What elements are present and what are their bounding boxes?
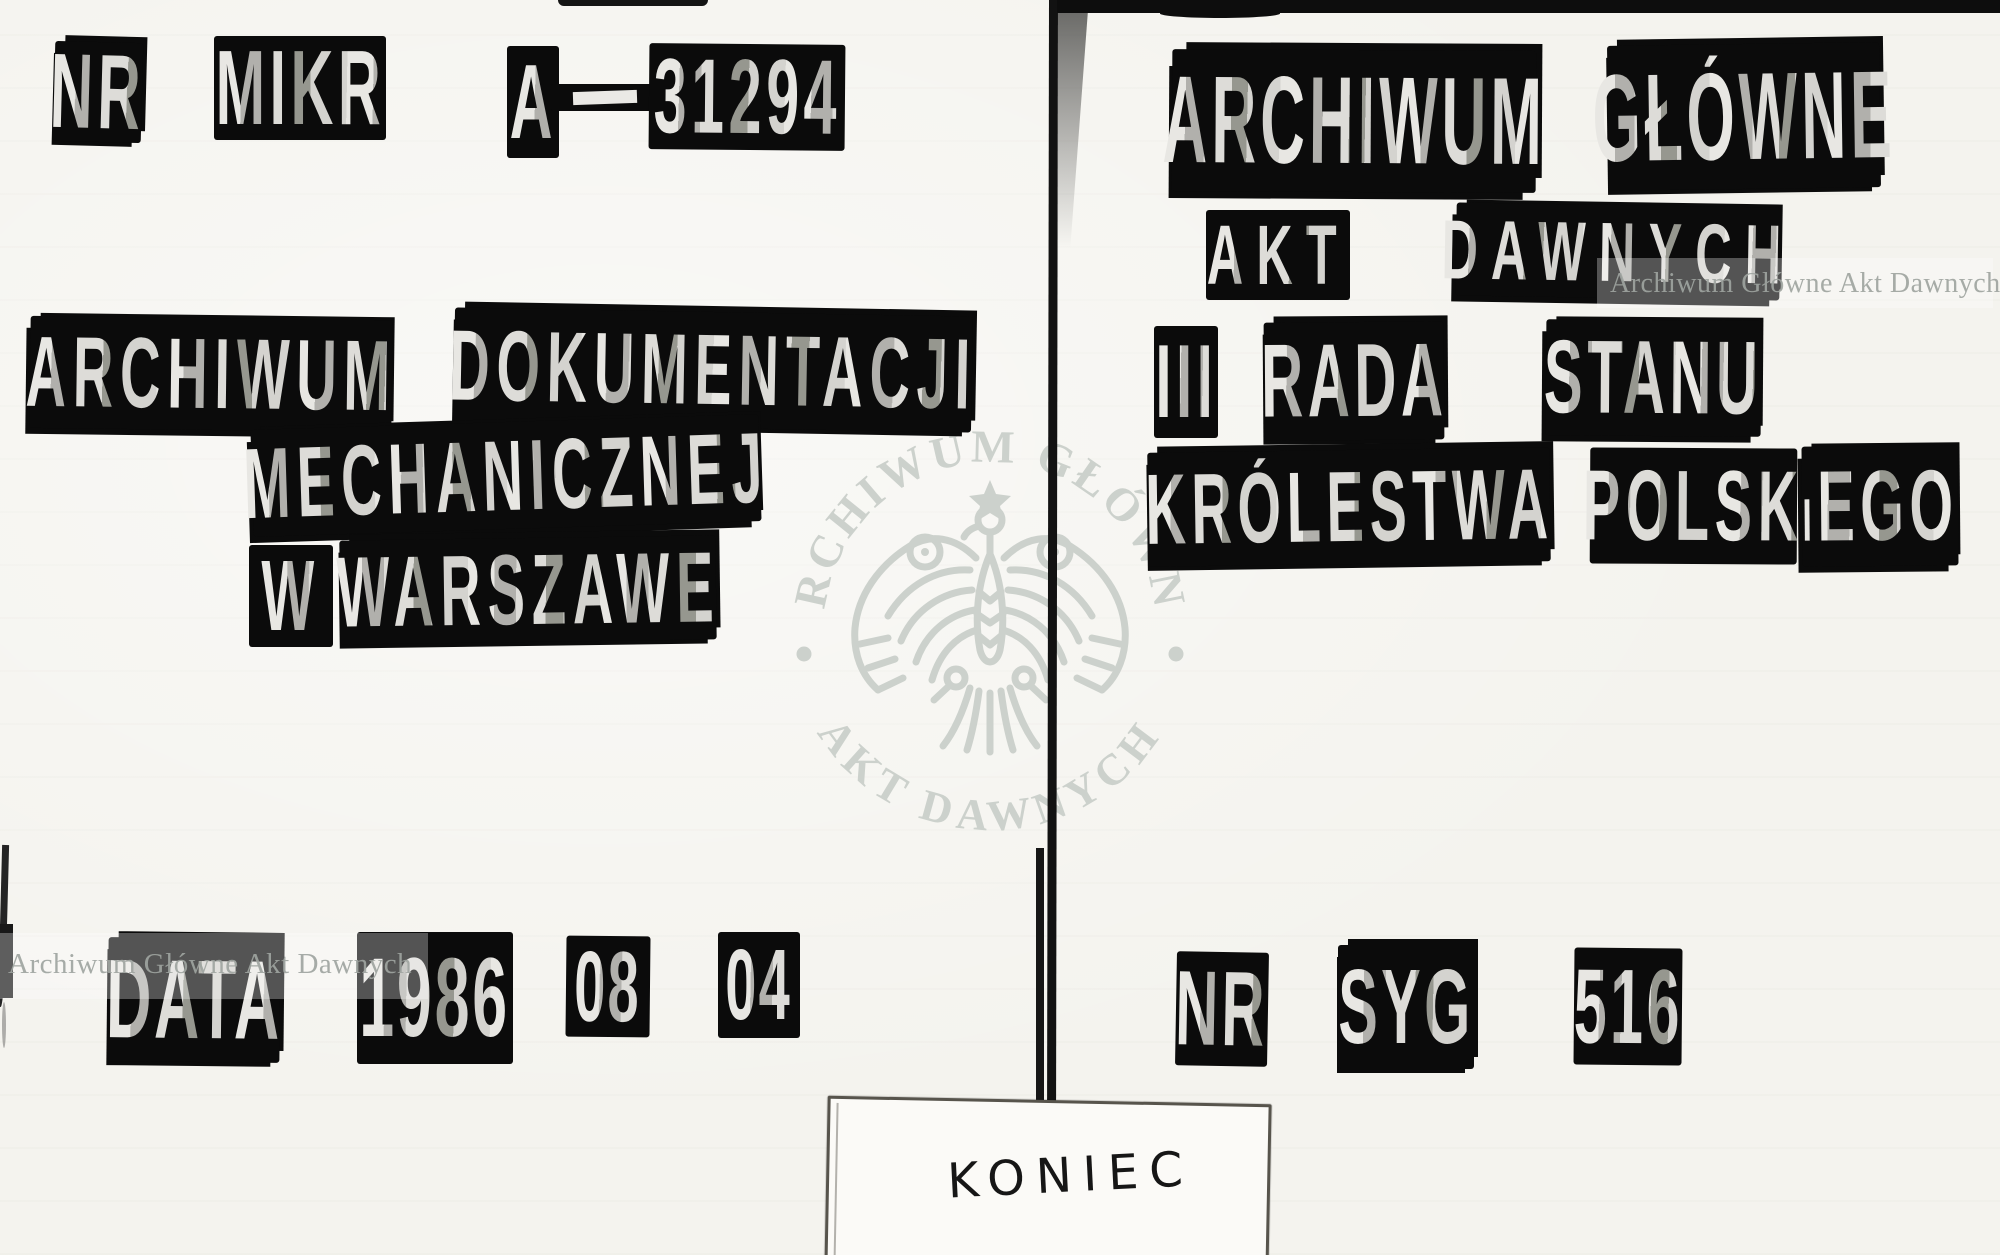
label-w-text: W [261, 546, 321, 646]
label-mechanicznej-text: MECHANICZNEJ [242, 417, 770, 533]
label-polsk: POLSK [1590, 447, 1798, 564]
label-polsk-text: POLSK [1583, 455, 1804, 556]
label-day-text: 04 [726, 935, 793, 1035]
label-nr-syg: NR [1175, 951, 1269, 1067]
label-iego-text: IEGO [1801, 455, 1958, 556]
label-archiwum-left-text: ARCHIWUM [25, 322, 397, 427]
label-stanu-text: STANU [1544, 325, 1763, 431]
label-nr: NR [53, 41, 144, 143]
dash-icon [573, 90, 637, 105]
polish-eagle-icon [855, 480, 1126, 752]
right-page-top-edge-bump [1160, 9, 1280, 18]
label-rada: RADA [1264, 321, 1445, 440]
left-page-top-edge [558, 0, 708, 6]
label-nr-text: NR [49, 38, 146, 146]
film-edge-mark [2, 1002, 6, 1048]
label-iii: III [1154, 326, 1218, 438]
end-slip-text: KONIEC [946, 1141, 1195, 1209]
label-series-a-text: A [509, 49, 556, 155]
label-stanu: STANU [1546, 319, 1762, 436]
label-signature-number: 516 [1573, 948, 1682, 1066]
label-iego: IEGO [1801, 445, 1958, 566]
label-akt: AKT [1206, 210, 1350, 300]
corner-watermark-bottom-left: Archiwum Główne Akt Dawnych [8, 948, 412, 981]
label-iii-text: III [1155, 330, 1217, 434]
label-krolestwa-text: KRÓLESTWA [1144, 454, 1554, 560]
label-signature-number-text: 516 [1573, 953, 1683, 1060]
gutter-shadow [1058, 10, 1088, 300]
label-dokumentacji-text: DOKUMENTACJI [448, 315, 977, 424]
label-warszawe: WARSZAWE [339, 535, 716, 644]
label-microfilm-number: 31294 [649, 43, 846, 151]
label-syg: SYG [1338, 945, 1474, 1069]
label-mikr: MIKR [214, 36, 386, 140]
label-archiwum-right-text: ARCHIWUM [1162, 58, 1546, 184]
scanned-microfilm-frame: ARCHIWUM GŁÓWNE AKT DAWNYCH [0, 0, 2000, 1255]
label-nr-syg-text: NR [1175, 955, 1269, 1063]
label-rada-text: RADA [1261, 328, 1448, 433]
label-krolestwa: KRÓLESTWA [1147, 447, 1551, 567]
label-w: W [249, 545, 333, 647]
label-archiwum-left: ARCHIWUM [29, 316, 392, 432]
label-syg-text: SYG [1338, 954, 1473, 1060]
label-month: 08 [565, 936, 650, 1038]
label-glowne: GŁÓWNE [1607, 42, 1881, 191]
label-mikr-text: MIKR [215, 35, 385, 141]
label-warszawe-text: WARSZAWE [336, 537, 721, 642]
label-glowne-text: GŁÓWNE [1592, 52, 1897, 180]
label-day: 04 [718, 932, 800, 1038]
corner-watermark-top-right: Archiwum Główne Akt Dawnych [1610, 268, 2000, 300]
label-microfilm-number-text: 31294 [653, 43, 841, 151]
page-gutter-second-line [1036, 848, 1044, 1106]
end-slip: KONIEC [824, 1096, 1271, 1255]
label-mechanicznej: MECHANICZNEJ [250, 414, 761, 537]
page-gutter-line [1047, 0, 1058, 1106]
label-archiwum-right: ARCHIWUM [1172, 49, 1537, 193]
label-akt-text: AKT [1206, 213, 1349, 297]
label-month-text: 08 [574, 936, 642, 1037]
label-dash-connector [551, 84, 659, 111]
